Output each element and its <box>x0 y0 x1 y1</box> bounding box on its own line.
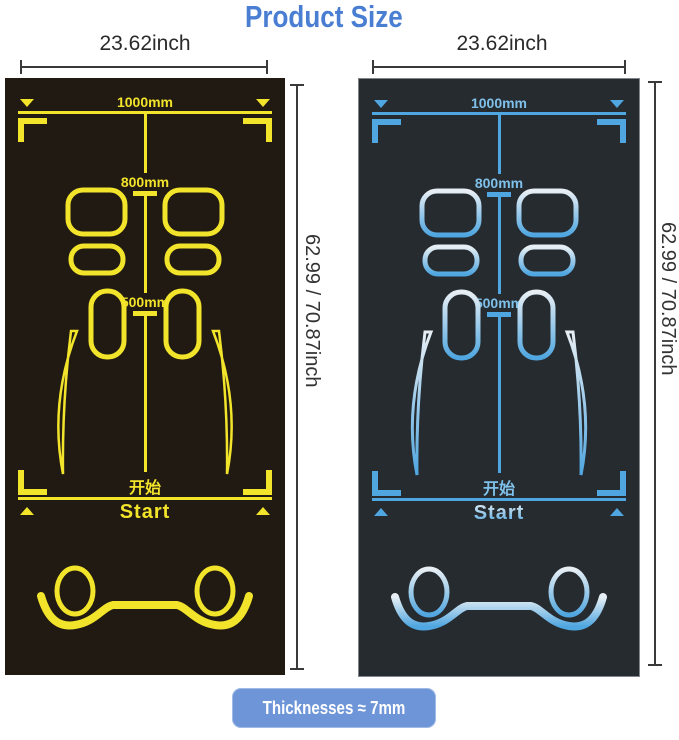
side-blade <box>567 332 586 475</box>
foot-controller <box>41 568 249 625</box>
down-arrow-icon <box>610 100 624 108</box>
ruler-tick <box>487 312 511 317</box>
mat-graphic-blue: 1000mm 800mm 500mm <box>358 78 640 677</box>
width-label-left: 23.62inch <box>5 32 285 56</box>
page-title-text: Product Size <box>245 0 403 33</box>
start-line <box>372 498 626 501</box>
width-dimension-line-left <box>20 66 268 68</box>
foot-circle <box>57 568 93 614</box>
length-800-label: 800mm <box>121 174 169 190</box>
corner-bracket-icon <box>243 470 269 492</box>
start-label-en: Start <box>120 501 171 523</box>
length-500-label: 500mm <box>475 295 523 311</box>
side-blade <box>213 331 232 474</box>
up-arrow-icon <box>374 508 388 516</box>
mat-graphic-yellow: 1000mm 800mm 500mm <box>5 78 285 675</box>
start-zone: 开始 Start <box>18 470 272 523</box>
foot-circle <box>197 568 233 614</box>
abs-pad <box>71 246 123 273</box>
abs-pad <box>425 247 477 274</box>
ruler-tick <box>487 192 511 197</box>
foot-controller <box>395 569 603 626</box>
height-label-left: 62.99 / 70.87inch <box>300 234 323 387</box>
abs-pad <box>68 190 125 234</box>
height-label-right: 62.99 / 70.87inch <box>656 222 679 375</box>
page-title: Product Size <box>0 0 648 33</box>
abs-pad <box>167 246 219 273</box>
up-arrow-icon <box>20 507 34 515</box>
corner-bracket-icon <box>597 122 623 143</box>
start-line <box>18 497 272 500</box>
down-arrow-icon <box>374 100 388 108</box>
width-label-right: 23.62inch <box>366 32 638 56</box>
product-size-figure: Product Size 23.62inch 1000mm 800mm 500m… <box>0 0 679 740</box>
corner-bracket-icon <box>375 471 401 493</box>
start-label-cn: 开始 <box>129 478 161 497</box>
ruler-tick <box>133 191 157 196</box>
corner-bracket-icon <box>243 121 269 142</box>
abs-pad <box>422 191 479 235</box>
abs-pad <box>521 247 573 274</box>
width-dimension-line-right <box>372 66 626 68</box>
height-dimension-line-left <box>296 84 298 670</box>
side-blade <box>58 331 77 474</box>
corner-bracket-icon <box>21 470 47 492</box>
top-ruler-line <box>372 112 626 115</box>
down-arrow-icon <box>20 99 34 107</box>
abs-pad <box>519 191 576 235</box>
wave-line <box>395 597 603 626</box>
ruler-tick <box>133 311 157 316</box>
corner-bracket-icon <box>21 121 47 142</box>
top-ruler-line <box>18 111 272 114</box>
length-1000-label: 1000mm <box>471 95 527 111</box>
length-1000-label: 1000mm <box>117 94 173 110</box>
abs-pad <box>165 190 222 234</box>
foot-circle <box>551 569 587 615</box>
start-zone: 开始 Start <box>372 471 626 524</box>
start-label-en: Start <box>474 502 525 524</box>
length-500-label: 500mm <box>121 294 169 310</box>
up-arrow-icon <box>256 507 270 515</box>
corner-bracket-icon <box>597 471 623 493</box>
center-measure-line: 800mm 500mm <box>119 114 171 472</box>
thickness-badge: Thicknesses ≈ 7mm <box>232 688 436 728</box>
side-blade <box>412 332 431 475</box>
thickness-label: Thicknesses ≈ 7mm <box>263 698 406 719</box>
foot-circle <box>411 569 447 615</box>
up-arrow-icon <box>610 508 624 516</box>
length-800-label: 800mm <box>475 175 523 191</box>
start-label-cn: 开始 <box>483 479 515 498</box>
corner-bracket-icon <box>375 122 401 143</box>
center-measure-line: 800mm 500mm <box>473 115 525 473</box>
wave-line <box>41 596 249 625</box>
down-arrow-icon <box>256 99 270 107</box>
